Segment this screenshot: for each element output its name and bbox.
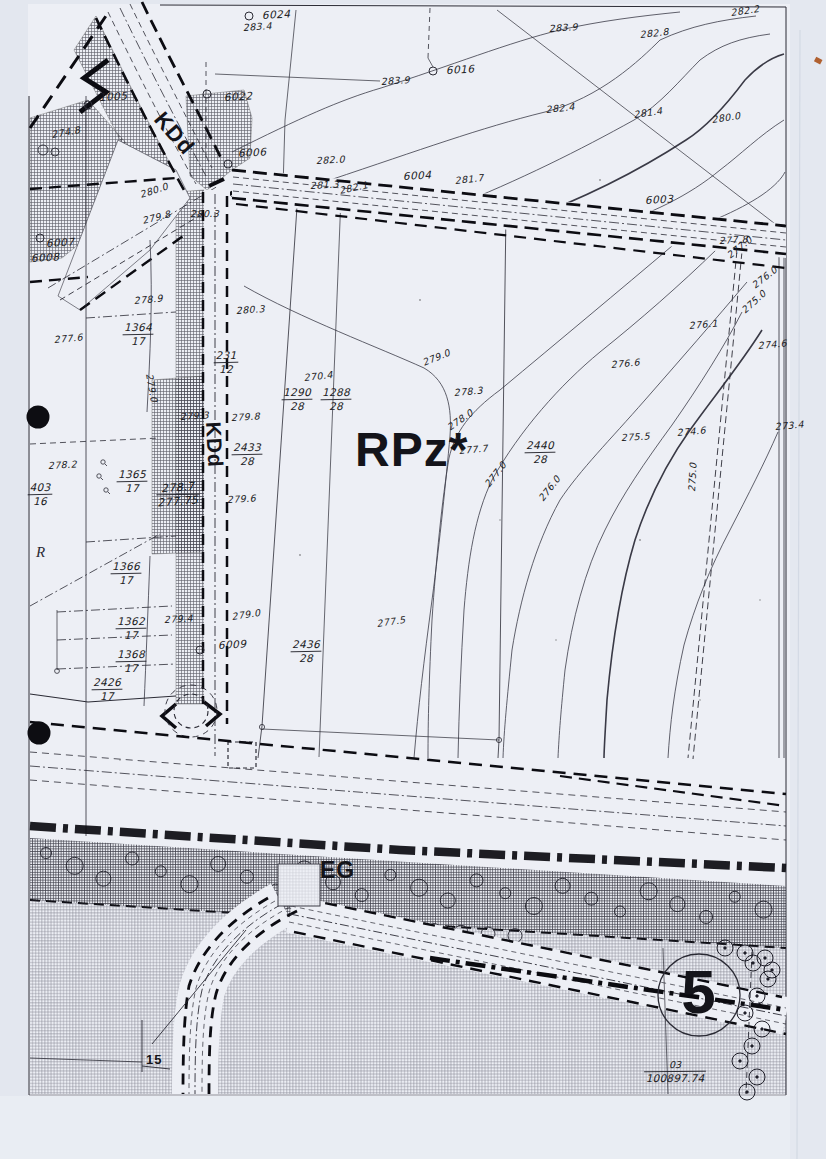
tree-center-dot xyxy=(744,1012,746,1014)
parcel-denominator: 17 xyxy=(119,574,134,586)
elevation-label: 279.6 xyxy=(227,492,257,505)
parcel-number: 1364 xyxy=(124,321,152,333)
zone-label-eg: EG xyxy=(320,857,355,883)
elevation-label: 279.8 xyxy=(231,410,261,423)
tree-center-dot xyxy=(756,995,758,997)
tree-center-dot xyxy=(752,962,754,964)
parcel-denominator: 17 xyxy=(124,662,139,674)
tree-center-dot xyxy=(724,947,726,949)
scanned-map-page: 283.4283.9282.8282.2283.9282.4281.4280.0… xyxy=(0,0,826,1159)
parcel-denominator: 16 xyxy=(33,495,48,507)
parcel-number: 1365 xyxy=(118,468,147,480)
zone-label-r: R xyxy=(35,544,46,560)
parcel-denominator: 28 xyxy=(299,652,314,664)
elevation-label: 281.3 xyxy=(310,178,340,191)
label-15: 15 xyxy=(146,1052,162,1067)
parcel-number: 1288 xyxy=(322,386,351,398)
elevation-label: 282.0 xyxy=(316,153,346,166)
parcel-denominator: 28 xyxy=(533,453,548,465)
parcel-number: 231 xyxy=(216,349,237,361)
parcel-denominator: 17 xyxy=(125,482,140,494)
parcel-number: 2426 xyxy=(93,676,122,688)
elevation-label: 283.9 xyxy=(380,74,410,87)
survey-point-label: 6024 xyxy=(261,8,290,21)
tree-center-dot xyxy=(767,978,769,980)
elevation-label: 278.2 xyxy=(48,458,78,471)
cadastral-plan-canvas: 283.4283.9282.8282.2283.9282.4281.4280.0… xyxy=(0,0,826,1159)
parcel-number: 2436 xyxy=(292,638,321,650)
tree-center-dot xyxy=(746,1091,748,1093)
parcel-number: 03 xyxy=(669,1059,682,1070)
elevation-label: 280.3 xyxy=(190,208,220,219)
tree-center-dot xyxy=(771,969,773,971)
tree-center-dot xyxy=(764,957,766,959)
survey-point-label: 6022 xyxy=(223,89,253,103)
tree-center-dot xyxy=(744,952,746,954)
survey-point-label: 1005 xyxy=(98,89,128,103)
parcel-denominator: 28 xyxy=(329,400,344,412)
survey-point-label: 6008 xyxy=(30,250,60,264)
parcel-number: 1368 xyxy=(117,648,146,660)
parcel-number: 2440 xyxy=(526,439,555,451)
road-label-kdd-vertical: KDd xyxy=(202,421,227,468)
survey-point-label: 6009 xyxy=(217,637,247,651)
zone-label-rpz: RPz* xyxy=(355,423,468,476)
parcel-number: 1362 xyxy=(117,615,146,627)
punch-hole-top xyxy=(27,406,50,429)
parcel-denominator: 17 xyxy=(131,335,146,347)
parcel-denominator: 17 xyxy=(100,690,115,702)
parcel-number: 1290 xyxy=(283,386,312,398)
tree-center-dot xyxy=(761,1028,763,1030)
survey-point-label: 6004 xyxy=(402,169,431,182)
elevation-label: 283.9 xyxy=(548,21,578,34)
parcel-denominator: 28 xyxy=(240,455,255,467)
survey-point-label: 6007 xyxy=(45,235,75,249)
survey-point-label: 6016 xyxy=(445,62,475,76)
survey-point-label: 6006 xyxy=(237,145,267,159)
parcel-denominator: 100897.74 xyxy=(646,1072,705,1084)
punch-hole-bottom xyxy=(28,722,51,745)
elevation-label: 279.3 xyxy=(180,409,210,422)
elevation-label: 283.4 xyxy=(242,20,272,33)
tree-center-dot xyxy=(739,1060,741,1062)
sheet-number-5: 5 xyxy=(681,957,716,1026)
parcel-number: 1366 xyxy=(112,560,141,572)
parcel-number: 278.7 xyxy=(161,480,197,495)
parcel-denominator: 12 xyxy=(219,363,234,375)
parcel-number: 2433 xyxy=(233,441,262,453)
tree-center-dot xyxy=(751,1045,753,1047)
elevation-label: 275.0 xyxy=(686,462,699,492)
parcel-denominator: 28 xyxy=(290,400,305,412)
survey-point-label: 6003 xyxy=(644,192,674,206)
eg-structure xyxy=(278,864,320,906)
elevation-label: 275.5 xyxy=(621,430,651,443)
elevation-label: 279.4 xyxy=(164,612,194,625)
parcel-number: 403 xyxy=(30,481,52,493)
elevation-label: 280.3 xyxy=(235,303,265,316)
tree-center-dot xyxy=(756,1076,758,1078)
parcel-denominator: 17 xyxy=(124,629,139,641)
